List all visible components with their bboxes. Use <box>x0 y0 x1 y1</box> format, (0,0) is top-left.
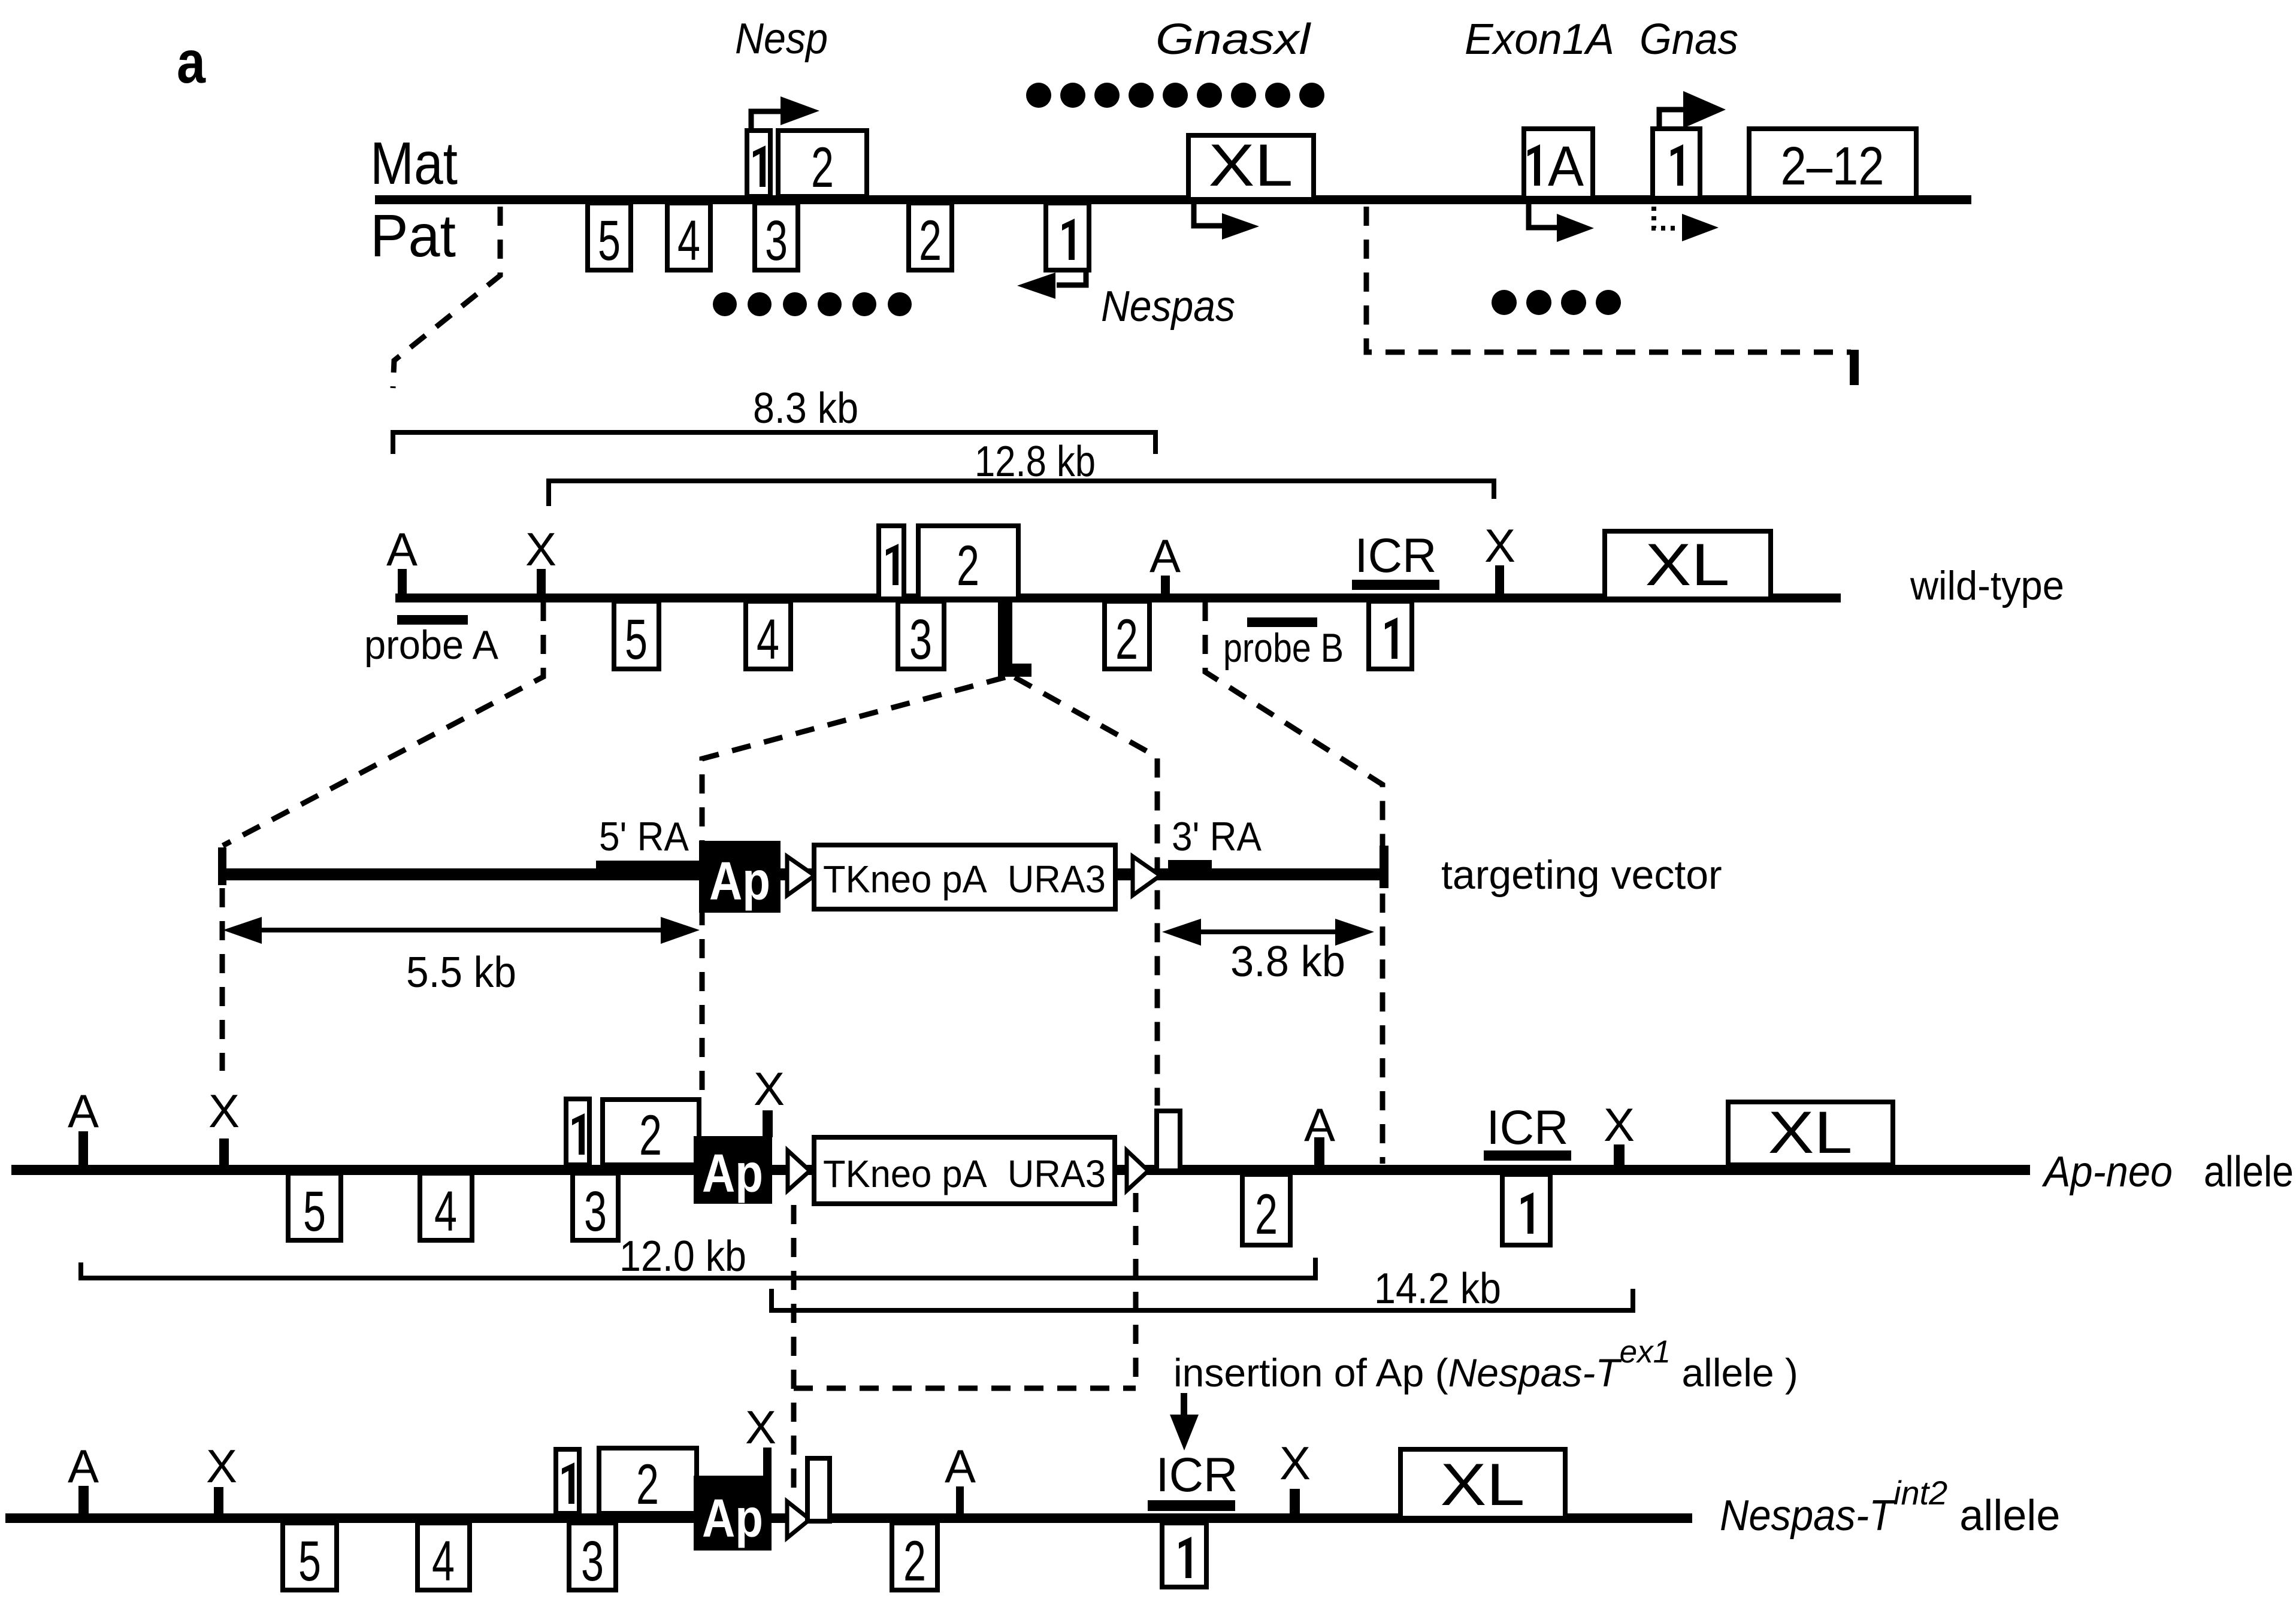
svg-text:2: 2 <box>1255 1183 1278 1246</box>
svg-text:A: A <box>68 1085 99 1137</box>
svg-text:A: A <box>1548 135 1584 198</box>
svg-text:3: 3 <box>584 1180 607 1243</box>
svg-text:5' RA: 5' RA <box>599 814 689 859</box>
svg-text:Ap: Ap <box>702 1489 763 1549</box>
svg-text:8.3 kb: 8.3 kb <box>753 384 858 432</box>
svg-text:2: 2 <box>957 534 979 598</box>
svg-text:5: 5 <box>303 1180 326 1243</box>
svg-text:ICR: ICR <box>1487 1101 1569 1155</box>
svg-text:probe B: probe B <box>1223 625 1344 671</box>
svg-text:XL: XL <box>1441 1451 1525 1518</box>
svg-text:A: A <box>68 1440 99 1492</box>
svg-text:a: a <box>177 29 206 96</box>
svg-text:5: 5 <box>625 608 648 671</box>
svg-text:4: 4 <box>432 1530 455 1593</box>
svg-text:A: A <box>1304 1098 1335 1151</box>
svg-text:2: 2 <box>639 1104 662 1167</box>
svg-text:Ap-neo allele: Ap-neo allele <box>2041 1148 2294 1196</box>
svg-text:X: X <box>1279 1437 1311 1489</box>
svg-text:TKneo pA URA3: TKneo pA URA3 <box>823 1152 1106 1195</box>
svg-text:3: 3 <box>765 209 788 272</box>
svg-text:XL: XL <box>1209 132 1293 198</box>
svg-text:4: 4 <box>434 1180 457 1243</box>
svg-text:2–12: 2–12 <box>1781 137 1884 196</box>
svg-text:Gnasxl: Gnasxl <box>1155 16 1311 63</box>
svg-text:X: X <box>525 523 556 576</box>
svg-text:ICR: ICR <box>1156 1448 1238 1502</box>
svg-text:5.5 kb: 5.5 kb <box>406 949 516 997</box>
svg-text:Mat: Mat <box>370 130 458 197</box>
svg-text:A: A <box>1149 529 1181 582</box>
svg-text:2: 2 <box>1115 608 1138 671</box>
svg-text:X: X <box>208 1085 240 1137</box>
svg-text:X: X <box>745 1401 776 1453</box>
svg-text:TKneo pA URA3: TKneo pA URA3 <box>823 858 1106 901</box>
svg-text:Ap: Ap <box>702 1144 763 1204</box>
svg-text:3' RA: 3' RA <box>1172 814 1262 859</box>
svg-text:12.0 kb: 12.0 kb <box>619 1233 746 1280</box>
svg-text:2: 2 <box>636 1453 659 1516</box>
svg-text:A: A <box>945 1440 976 1492</box>
svg-text:14.2 kb: 14.2 kb <box>1374 1265 1501 1313</box>
svg-text:5: 5 <box>298 1530 321 1593</box>
svg-text:probe A: probe A <box>364 622 499 668</box>
svg-text:Exon1A: Exon1A <box>1465 16 1614 63</box>
svg-text:X: X <box>1604 1098 1635 1151</box>
svg-text:12.8 kb: 12.8 kb <box>975 438 1096 486</box>
svg-text:4: 4 <box>677 209 700 272</box>
svg-text:2: 2 <box>919 209 942 272</box>
svg-text:2: 2 <box>811 136 834 199</box>
svg-text:Gnas: Gnas <box>1639 16 1738 63</box>
svg-text:A: A <box>386 523 418 576</box>
svg-text:4: 4 <box>757 608 779 671</box>
svg-text:ICR: ICR <box>1355 529 1437 583</box>
svg-text:Nespas: Nespas <box>1101 283 1235 331</box>
svg-text:Nesp: Nesp <box>735 15 828 63</box>
svg-text:3.8 kb: 3.8 kb <box>1230 938 1345 986</box>
svg-text:3: 3 <box>581 1530 604 1593</box>
svg-text:targeting vector: targeting vector <box>1441 852 1722 898</box>
svg-text:XL: XL <box>1768 1099 1853 1165</box>
svg-text:3: 3 <box>909 608 932 671</box>
svg-text:X: X <box>206 1440 237 1492</box>
svg-text:5: 5 <box>598 209 621 272</box>
svg-text:2: 2 <box>903 1530 926 1593</box>
svg-text:Ap: Ap <box>709 852 770 912</box>
svg-text:X: X <box>1484 519 1515 572</box>
svg-text:Pat: Pat <box>370 202 456 269</box>
svg-text:wild-type: wild-type <box>1910 563 2064 608</box>
svg-text:XL: XL <box>1645 531 1730 598</box>
svg-text:X: X <box>754 1062 785 1115</box>
